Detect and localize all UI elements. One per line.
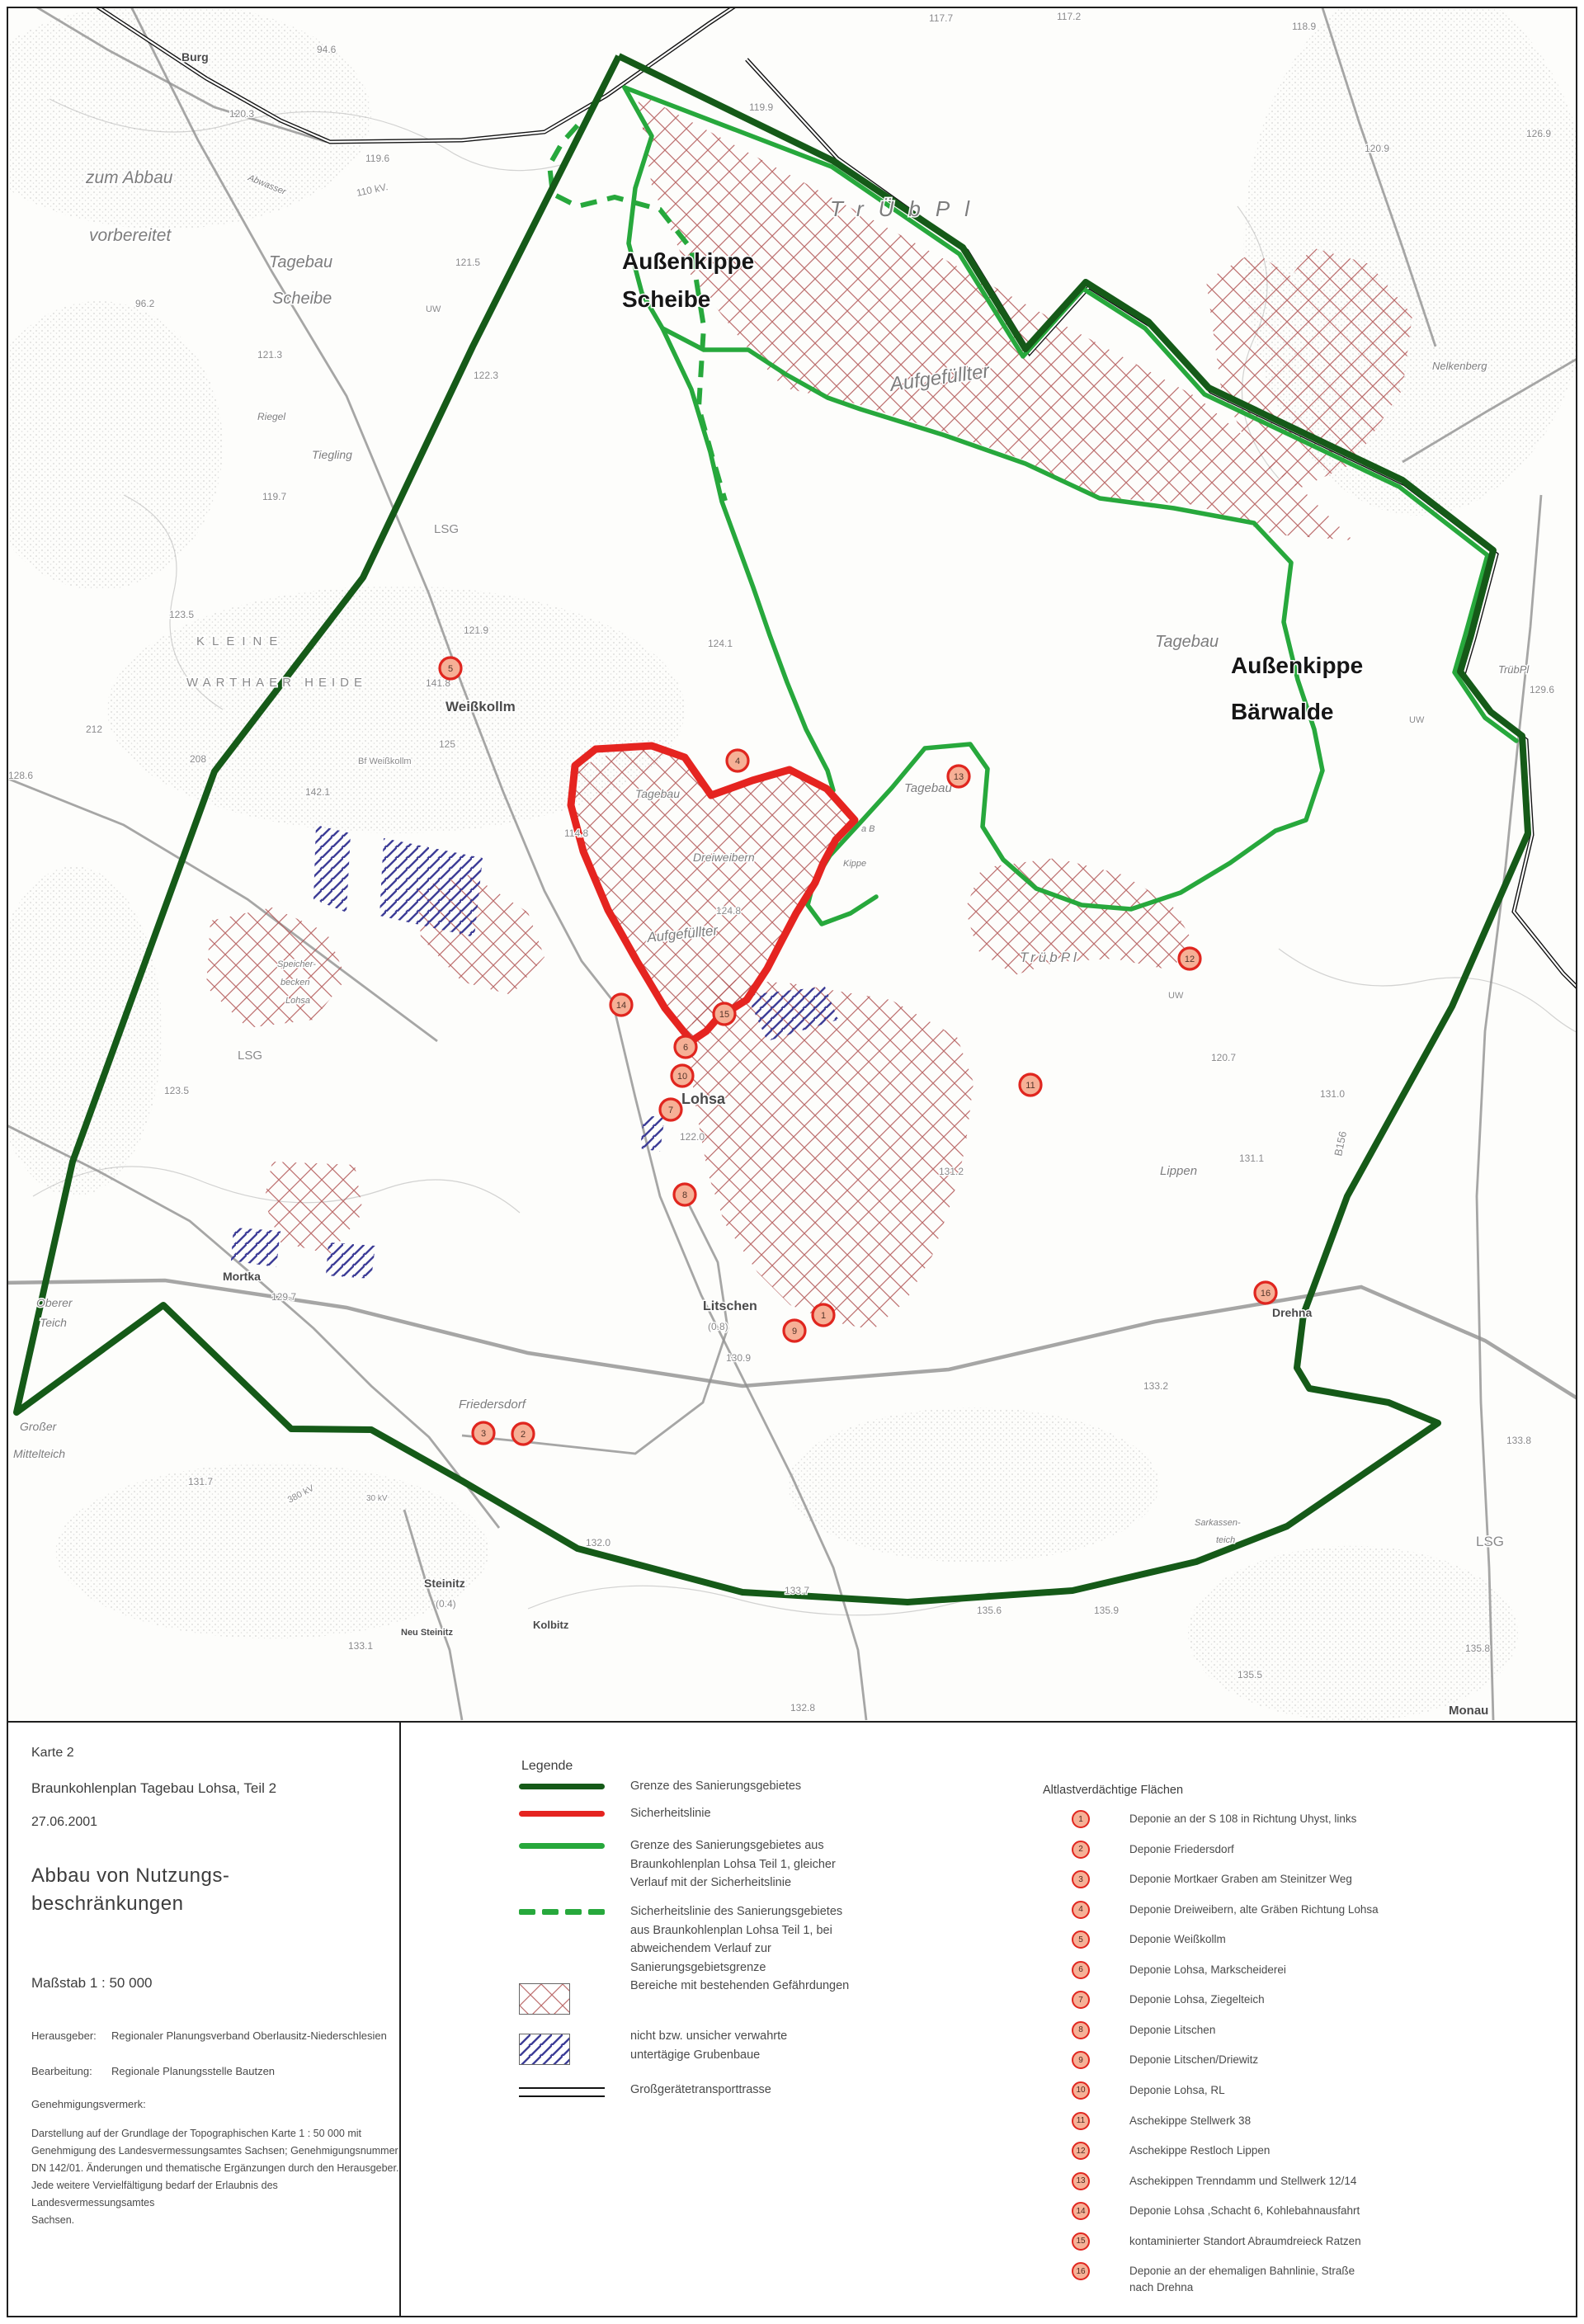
spot-height: 131.7 — [188, 1476, 213, 1487]
spot-height: 128.6 — [8, 770, 33, 781]
site-number-11: 11 — [1072, 2112, 1090, 2130]
map-marker-3: 3 — [473, 1422, 494, 1444]
map-label: Außenkippe — [622, 248, 754, 274]
spot-height: 135.9 — [1094, 1605, 1119, 1616]
map-canvas: AußenkippeScheibeAußenkippeBärwaldeWeißk… — [8, 8, 1576, 1721]
map-label: a B — [861, 824, 875, 834]
svg-text:11: 11 — [1025, 1081, 1035, 1091]
map-label: Außenkippe — [1231, 653, 1363, 678]
spot-height: 125 — [439, 738, 455, 750]
map-label: Tiegling — [312, 448, 352, 461]
map-label: Mittelteich — [13, 1447, 65, 1460]
site-label-12: Aschekippe Restloch Lippen — [1129, 2143, 1270, 2159]
svg-text:16: 16 — [1261, 1289, 1270, 1299]
site-number-16: 16 — [1072, 2262, 1090, 2280]
legend-label: Großgerätetransporttrasse — [630, 2081, 771, 2100]
spot-height: 121.5 — [455, 257, 480, 268]
hazard-area — [206, 907, 346, 1028]
map-label: zum Abbau — [85, 168, 173, 187]
map-marker-13: 13 — [948, 766, 969, 787]
map-label: Tagebau — [1155, 633, 1219, 651]
spot-height: 119.9 — [749, 101, 773, 113]
site-number-7: 7 — [1072, 1991, 1090, 2009]
map-label: LSG — [238, 1049, 262, 1063]
spot-height: 133.2 — [1143, 1380, 1168, 1392]
site-label-14: Deponie Lohsa ,Schacht 6, Kohlebahnausfa… — [1129, 2203, 1360, 2219]
stipple-patch — [788, 1407, 1159, 1563]
map-marker-11: 11 — [1020, 1074, 1041, 1096]
approval-line: Genehmigung des Landesvermessungsamtes S… — [31, 2143, 399, 2160]
map-marker-9: 9 — [784, 1320, 805, 1341]
site-label-2: Deponie Friedersdorf — [1129, 1841, 1234, 1858]
map-label: Drehna — [1272, 1306, 1312, 1319]
map-label: Scheibe — [272, 290, 332, 308]
publisher-value: Regionaler Planungsverband Oberlausitz-N… — [111, 2029, 387, 2042]
site-label-6: Deponie Lohsa, Markscheiderei — [1129, 1962, 1286, 1978]
site-label-8: Deponie Litschen — [1129, 2022, 1215, 2039]
editor-value: Regionale Planungsstelle Bautzen — [111, 2065, 275, 2077]
spot-height: 123.5 — [164, 1085, 189, 1096]
legend-symbol-line — [519, 1843, 605, 1849]
map-label: Dreiweibern — [693, 851, 755, 864]
site-label-11: Aschekippe Stellwerk 38 — [1129, 2113, 1251, 2129]
svg-text:8: 8 — [682, 1190, 687, 1200]
map-label: Lippen — [1160, 1164, 1197, 1178]
map-label: becken — [280, 978, 309, 988]
mine-working-area — [326, 1242, 375, 1279]
map-marker-4: 4 — [727, 750, 748, 771]
spot-height: 122.3 — [474, 370, 498, 381]
site-label-9: Deponie Litschen/Driewitz — [1129, 2052, 1258, 2068]
map-marker-15: 15 — [714, 1003, 735, 1025]
map-label: B156 — [1332, 1130, 1349, 1157]
spot-height: 118.9 — [1292, 21, 1316, 32]
site-number-12: 12 — [1072, 2142, 1090, 2160]
svg-text:7: 7 — [668, 1105, 673, 1115]
spot-height: 208 — [190, 753, 206, 765]
spot-height: 117.7 — [929, 12, 953, 24]
spot-height: 121.3 — [257, 349, 282, 361]
spot-height: 96.2 — [135, 298, 155, 309]
spot-height: 124.8 — [716, 905, 741, 917]
hazard-area — [689, 978, 973, 1330]
svg-text:5: 5 — [448, 664, 453, 674]
legend-label: Grenze des Sanierungsgebietes ausBraunko… — [630, 1836, 836, 1893]
spot-height: 132.8 — [790, 1702, 815, 1714]
site-label-4: Deponie Dreiweibern, alte Gräben Richtun… — [1129, 1902, 1379, 1918]
spot-height: 133.8 — [1506, 1435, 1531, 1446]
spot-height: 120.9 — [1365, 143, 1389, 154]
map-label: Weißkollm — [445, 699, 516, 714]
legend-title: Legende — [521, 1759, 573, 1774]
plan-title: Braunkohlenplan Tagebau Lohsa, Teil 2 — [31, 1780, 276, 1797]
site-number-15: 15 — [1072, 2232, 1090, 2251]
spot-height: 119.7 — [262, 491, 286, 502]
spot-height: 114.8 — [564, 827, 588, 839]
legend-label: Sicherheitslinie des Sanierungsgebietesa… — [630, 1902, 842, 1977]
spot-height: 121.9 — [464, 625, 488, 636]
site-label-1: Deponie an der S 108 in Richtung Uhyst, … — [1129, 1811, 1356, 1827]
spot-height: 130.9 — [726, 1352, 751, 1364]
svg-text:9: 9 — [792, 1327, 797, 1336]
map-label: 30 kV — [366, 1494, 388, 1503]
legend-label: Grenze des Sanierungsgebietes — [630, 1777, 801, 1796]
stipple-patch — [8, 866, 162, 1196]
site-number-5: 5 — [1072, 1930, 1090, 1949]
site-number-6: 6 — [1072, 1961, 1090, 1979]
map-label: UW — [1168, 991, 1184, 1001]
site-number-10: 10 — [1072, 2081, 1090, 2100]
plan-date: 27.06.2001 — [31, 1815, 97, 1830]
map-label: Scheibe — [622, 286, 710, 312]
map-label: Teich — [40, 1316, 67, 1329]
spot-height: 129.7 — [271, 1291, 296, 1303]
svg-text:14: 14 — [616, 1001, 626, 1011]
map-label: Lohsa — [285, 996, 310, 1006]
contour-line — [1279, 949, 1576, 1044]
road — [462, 1196, 728, 1454]
approval-line: Sachsen. — [31, 2212, 399, 2229]
map-label: LSG — [1476, 1534, 1504, 1549]
spot-height: 123.5 — [169, 609, 194, 620]
sites-title: Altlastverdächtige Flächen — [1043, 1784, 1183, 1797]
site-number-3: 3 — [1072, 1870, 1090, 1888]
legend-label: Sicherheitslinie — [630, 1804, 711, 1823]
legend-label: Bereiche mit bestehenden Gefährdungen — [630, 1977, 849, 1996]
site-number-9: 9 — [1072, 2051, 1090, 2069]
map-label: Kolbitz — [533, 1619, 569, 1631]
site-label-10: Deponie Lohsa, RL — [1129, 2082, 1225, 2099]
map-number: Karte 2 — [31, 1746, 74, 1761]
stipple-patch — [8, 301, 223, 590]
map-label: teich — [1216, 1535, 1235, 1545]
map-marker-10: 10 — [672, 1065, 693, 1087]
site-number-4: 4 — [1072, 1901, 1090, 1919]
map-label: WARTHAER HEIDE — [186, 676, 367, 690]
legend-symbol-double — [519, 2087, 605, 2097]
spot-height: 129.6 — [1530, 684, 1554, 695]
site-label-3: Deponie Mortkaer Graben am Steinitzer We… — [1129, 1871, 1352, 1888]
map-area: AußenkippeScheibeAußenkippeBärwaldeWeißk… — [8, 8, 1576, 1721]
map-marker-8: 8 — [674, 1184, 695, 1205]
map-label: UW — [1409, 715, 1425, 725]
map-label: Tagebau — [269, 253, 332, 271]
map-label: Steinitz — [424, 1577, 465, 1590]
spot-height: 133.1 — [348, 1640, 373, 1652]
map-label: Lohsa — [681, 1091, 726, 1107]
map-marker-7: 7 — [660, 1099, 681, 1120]
spot-height: 133.7 — [785, 1585, 809, 1596]
legend-symbol-line — [519, 1784, 605, 1789]
map-label: LSG — [434, 522, 459, 536]
map-marker-14: 14 — [610, 994, 632, 1016]
map-marker-16: 16 — [1255, 1282, 1276, 1303]
spot-height: 120.3 — [229, 108, 254, 120]
svg-text:3: 3 — [481, 1429, 486, 1439]
info-panel: Karte 2 Braunkohlenplan Tagebau Lohsa, T… — [8, 1723, 399, 2316]
map-label: Speicher- — [277, 959, 316, 969]
site-number-1: 1 — [1072, 1810, 1090, 1828]
spot-height: 119.6 — [365, 153, 389, 164]
map-marker-6: 6 — [675, 1036, 696, 1058]
spot-height: 212 — [86, 724, 102, 735]
svg-text:13: 13 — [954, 772, 964, 782]
map-label: Friedersdorf — [459, 1398, 527, 1412]
spot-height: 120.7 — [1211, 1052, 1236, 1063]
map-label: Kippe — [843, 859, 866, 869]
map-label: TrÜbPl — [830, 196, 984, 221]
approval-line: DN 142/01. Änderungen und thematische Er… — [31, 2160, 399, 2177]
spot-height: 126.9 — [1526, 128, 1551, 139]
approval-text: Darstellung auf der Grundlage der Topogr… — [31, 2125, 399, 2229]
svg-text:6: 6 — [683, 1043, 688, 1053]
mine-working-area — [640, 1115, 665, 1152]
editor-label: Bearbeitung: — [31, 2065, 92, 2077]
map-title-line1: Abbau von Nutzungs- — [31, 1864, 229, 1888]
map-marker-5: 5 — [440, 658, 461, 679]
map-label: Litschen — [703, 1299, 757, 1313]
map-label: KLEINE — [196, 634, 285, 648]
map-label: TrübPl — [1498, 663, 1530, 676]
mine-working-area — [231, 1228, 280, 1267]
svg-text:4: 4 — [735, 757, 740, 766]
site-number-13: 13 — [1072, 2172, 1090, 2190]
site-label-15: kontaminierter Standort Abraumdreieck Ra… — [1129, 2233, 1361, 2250]
map-label: Sarkassen- — [1195, 1518, 1241, 1528]
map-label: Mortka — [223, 1270, 261, 1283]
map-label: Oberer — [36, 1296, 73, 1309]
spot-height: 135.8 — [1465, 1643, 1490, 1654]
publisher-label: Herausgeber: — [31, 2029, 97, 2042]
map-marker-2: 2 — [512, 1423, 534, 1445]
spot-height: 131.2 — [939, 1166, 964, 1177]
stipple-patch — [56, 1464, 489, 1639]
approval-label: Genehmigungsvermerk: — [31, 2098, 146, 2110]
site-label-13: Aschekippen Trenndamm und Stellwerk 12/1… — [1129, 2173, 1356, 2190]
legend-symbol-dash — [519, 1909, 605, 1915]
map-label: TrübPl — [1020, 950, 1080, 965]
map-label: Nelkenberg — [1432, 360, 1487, 372]
spot-height: 94.6 — [317, 44, 337, 55]
map-label: Großer — [20, 1420, 58, 1433]
legend-symbol-line — [519, 1811, 605, 1817]
spot-height: (0.8) — [708, 1321, 728, 1332]
mine-working-area — [313, 825, 351, 912]
stipple-patch — [1188, 1546, 1518, 1721]
mine-working-area — [379, 838, 483, 937]
map-title-line2: beschränkungen — [31, 1893, 183, 1916]
map-marker-12: 12 — [1179, 948, 1200, 969]
map-label: UW — [426, 304, 441, 314]
spot-height: 135.6 — [977, 1605, 1002, 1616]
map-label: Tagebau — [904, 781, 952, 795]
legend-label: nicht bzw. unsicher verwahrteuntertägige… — [630, 2027, 787, 2064]
svg-text:10: 10 — [677, 1072, 687, 1082]
site-number-8: 8 — [1072, 2021, 1090, 2039]
map-label: Bf Weißkollm — [358, 757, 412, 766]
map-label: Burg — [181, 50, 209, 64]
map-label: Tagebau — [635, 787, 680, 800]
site-number-14: 14 — [1072, 2202, 1090, 2220]
stipple-patch — [8, 8, 371, 229]
svg-text:1: 1 — [821, 1311, 826, 1321]
spot-height: 132.0 — [586, 1537, 610, 1549]
map-label: 110 kV. — [356, 181, 389, 199]
legend-panel: Legende Grenze des SanierungsgebietesSic… — [401, 1723, 1577, 2316]
spot-height: 122.0 — [680, 1131, 705, 1143]
map-scale: Maßstab 1 : 50 000 — [31, 1975, 152, 1992]
svg-text:2: 2 — [521, 1430, 526, 1440]
spot-height: 117.2 — [1057, 11, 1081, 22]
site-label-16: Deponie an der ehemaligen Bahnlinie, Str… — [1129, 2263, 1355, 2296]
legend-symbol-hatch-blue — [519, 2034, 605, 2065]
site-label-5: Deponie Weißkollm — [1129, 1931, 1226, 1948]
spot-height: (0.4) — [436, 1598, 456, 1610]
spot-height: 135.5 — [1237, 1669, 1262, 1681]
map-label: Bärwalde — [1231, 699, 1334, 724]
map-label: vorbereitet — [89, 226, 172, 245]
map-label: Riegel — [257, 411, 285, 422]
spot-height: 142.1 — [305, 786, 330, 798]
map-label: Neu Steinitz — [401, 1628, 453, 1638]
spot-height: 124.1 — [708, 638, 733, 649]
svg-text:12: 12 — [1185, 955, 1195, 964]
spot-height: 131.0 — [1320, 1088, 1345, 1100]
legend-symbol-hatch-red — [519, 1983, 605, 2015]
site-number-2: 2 — [1072, 1841, 1090, 1859]
map-marker-1: 1 — [813, 1304, 834, 1326]
map-label: Monau — [1449, 1704, 1488, 1718]
site-label-7: Deponie Lohsa, Ziegelteich — [1129, 1992, 1265, 2008]
spot-height: 131.1 — [1239, 1153, 1264, 1164]
svg-text:15: 15 — [719, 1010, 729, 1020]
approval-line: Darstellung auf der Grundlage der Topogr… — [31, 2125, 399, 2143]
approval-line: Jede weitere Vervielfältigung bedarf der… — [31, 2177, 399, 2212]
